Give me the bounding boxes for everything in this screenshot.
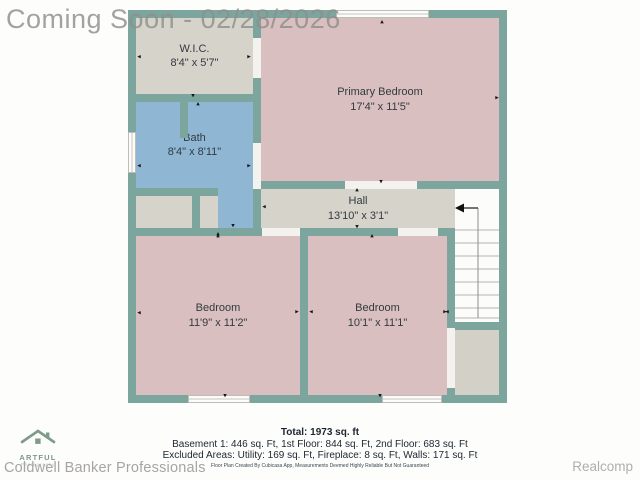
floor-areas: Basement 1: 446 sq. Ft, 1st Floor: 844 s… — [0, 439, 640, 450]
house-logo-icon — [19, 428, 57, 447]
measure-arrow-icon: ▴ — [196, 101, 200, 108]
room-lower-landing — [455, 330, 499, 395]
room-primary-bedroom: Primary Bedroom 17'4" x 11'5" — [261, 18, 499, 181]
window — [128, 132, 136, 173]
room-bath: Bath 8'4" x 8'11" — [136, 102, 253, 188]
room-hall: Hall 13'10" x 3'1" — [261, 189, 455, 228]
measure-arrow-icon: ▾ — [379, 179, 383, 186]
bath-corridor — [218, 188, 253, 228]
door-opening — [398, 228, 438, 236]
mls-provider: Realcomp — [572, 459, 633, 474]
measure-arrow-icon: ◂ — [445, 309, 449, 316]
closet-left — [136, 196, 192, 228]
room-dimensions: 11'9" x 11'2" — [189, 316, 248, 331]
room-name: Primary Bedroom — [337, 85, 423, 100]
measure-arrow-icon: ◂ — [137, 163, 141, 170]
room-name: W.I.C. — [180, 42, 210, 57]
room-dimensions: 8'4" x 5'7" — [170, 56, 218, 71]
measure-arrow-icon: ▸ — [247, 163, 251, 170]
measure-arrow-icon: ◂ — [137, 54, 141, 61]
measure-arrow-icon: ▸ — [247, 54, 251, 61]
measure-arrow-icon: ▸ — [495, 95, 499, 102]
brokerage-name: Coldwell Banker Professionals — [4, 460, 206, 476]
room-dimensions: 10'1" x 11'1" — [348, 316, 408, 331]
room-dimensions: 8'4" x 8'11" — [168, 145, 221, 160]
room-dimensions: 17'4" x 11'5" — [350, 100, 410, 115]
door-opening — [253, 38, 261, 78]
door-opening — [253, 143, 261, 189]
measure-arrow-icon: ▴ — [216, 233, 220, 240]
window — [336, 10, 429, 18]
room-dimensions: 13'10" x 3'1" — [328, 209, 388, 224]
window — [382, 395, 442, 403]
measure-arrow-icon: ▾ — [223, 393, 227, 400]
room-name: Bedroom — [196, 301, 241, 316]
measure-arrow-icon: ▾ — [191, 93, 195, 100]
measure-arrow-icon: ▾ — [231, 223, 235, 230]
staircase — [455, 189, 499, 322]
door-opening — [262, 228, 300, 236]
window — [188, 395, 250, 403]
measure-arrow-icon: ▴ — [370, 233, 374, 240]
room-bedroom-right: Bedroom 10'1" x 11'1" — [308, 236, 447, 395]
measure-arrow-icon: ◂ — [309, 309, 313, 316]
room-bedroom-left: Bedroom 11'9" x 11'2" — [136, 236, 300, 395]
door-opening — [447, 328, 455, 388]
floor-plan: W.I.C. 8'4" x 5'7" Primary Bedroom 17'4"… — [128, 10, 507, 403]
bath-wall-stub — [180, 94, 188, 138]
measure-arrow-icon: ▸ — [295, 309, 299, 316]
staircase-steps-icon — [455, 189, 499, 322]
measure-arrow-icon: ▴ — [355, 187, 359, 194]
measure-arrow-icon: ◂ — [137, 310, 141, 317]
coming-soon-watermark: Coming Soon - 02/28/2026 — [6, 4, 341, 35]
measure-arrow-icon: ▴ — [380, 19, 384, 26]
room-name: Hall — [349, 194, 368, 209]
measure-arrow-icon: ◂ — [262, 204, 266, 211]
stair-direction-arrow-icon — [455, 204, 464, 213]
floorplan-screenshot: W.I.C. 8'4" x 5'7" Primary Bedroom 17'4"… — [0, 0, 640, 480]
closet-right — [200, 196, 218, 228]
total-area: Total: 1973 sq. ft — [0, 427, 640, 438]
measure-arrow-icon: ▾ — [355, 224, 359, 231]
measure-arrow-icon: ▾ — [378, 393, 382, 400]
room-name: Bedroom — [355, 301, 400, 316]
